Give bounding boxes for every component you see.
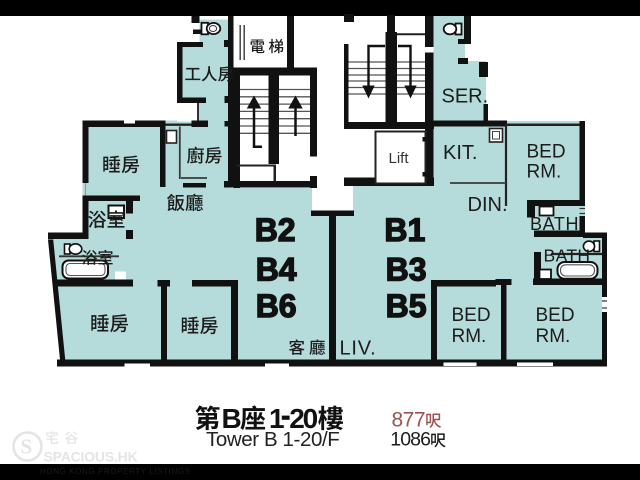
svg-text:BED: BED xyxy=(452,305,491,326)
svg-text:HONG KONG PROPERTY LISTINGS: HONG KONG PROPERTY LISTINGS xyxy=(40,467,191,476)
svg-text:KIT.: KIT. xyxy=(443,142,477,164)
svg-text:B4: B4 xyxy=(256,251,297,287)
svg-text:RM.: RM. xyxy=(527,162,562,183)
svg-text:RM.: RM. xyxy=(452,326,487,347)
svg-text:SPACIOUS.HK: SPACIOUS.HK xyxy=(44,449,138,465)
svg-text:B5: B5 xyxy=(386,288,427,324)
svg-text:DIN.: DIN. xyxy=(468,194,508,216)
svg-text:1086: 1086 xyxy=(390,429,430,451)
svg-text:B3: B3 xyxy=(386,251,427,287)
svg-text:LIV.: LIV. xyxy=(340,338,377,360)
svg-text:BATH: BATH xyxy=(544,246,591,266)
svg-text:S: S xyxy=(21,435,33,459)
svg-text:BED: BED xyxy=(527,141,566,162)
svg-text:Tower B 1-20/F: Tower B 1-20/F xyxy=(206,428,339,451)
svg-text:Lift: Lift xyxy=(389,150,410,167)
svg-text:BED: BED xyxy=(536,305,575,326)
svg-text:RM.: RM. xyxy=(536,326,571,347)
svg-text:SER.: SER. xyxy=(442,86,489,108)
svg-text:B1: B1 xyxy=(384,212,425,248)
svg-text:BATH: BATH xyxy=(530,214,579,234)
svg-text:B2: B2 xyxy=(255,212,296,248)
svg-text:B6: B6 xyxy=(256,288,297,324)
